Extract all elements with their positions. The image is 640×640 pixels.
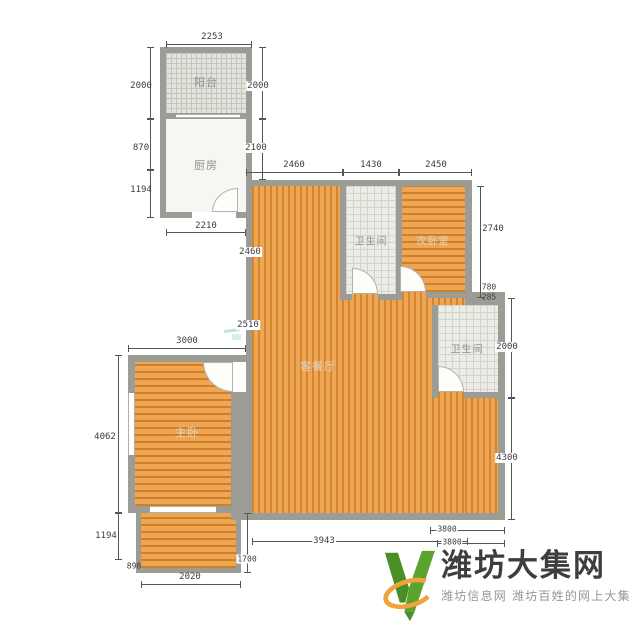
wall-segment: [396, 292, 402, 298]
room-label-bath-center: 卫生间: [355, 233, 388, 248]
wall-segment: [160, 47, 166, 119]
dim-label: 2460: [238, 247, 262, 257]
wall-segment: [160, 47, 252, 53]
wall-segment: [160, 113, 166, 218]
logo-v-icon: [381, 549, 437, 623]
dim-label: 2510: [236, 320, 260, 330]
wall-segment: [128, 355, 246, 362]
room-label-living: 客餐厅: [300, 358, 336, 374]
window-bedroom-master: [128, 393, 135, 455]
balcony2-floor: [141, 513, 236, 568]
door-opening: [231, 362, 246, 392]
wall-segment: [160, 212, 192, 218]
dim-label: 1700: [236, 555, 257, 564]
wall-segment: [246, 180, 472, 186]
room-label-balcony: 阳台: [194, 74, 218, 90]
dim-line: [141, 584, 241, 585]
dim-label: 2450: [425, 160, 447, 170]
window-bedroom-balcony: [150, 506, 216, 513]
room-label-bedroom-master: 主卧: [175, 424, 199, 440]
dim-line: [118, 513, 119, 560]
wall-segment: [498, 305, 505, 520]
wall-segment: [236, 513, 241, 573]
dim-label: 898: [127, 562, 141, 571]
dim-line: [166, 44, 252, 45]
site-logo: 潍坊大集网 潍坊信息网 潍坊百姓的网上大集: [381, 549, 631, 623]
dim-label: 2100: [244, 143, 268, 153]
living-room-floor-right: [465, 398, 498, 513]
wall-segment: [128, 506, 150, 513]
dim-line: [247, 513, 248, 573]
watermark-smudge: [232, 334, 241, 340]
dim-label: 3800: [441, 538, 462, 547]
wall-segment: [246, 180, 252, 513]
wall-segment: [465, 180, 472, 298]
wall-segment: [432, 392, 438, 398]
dim-label: 1194: [130, 185, 152, 195]
dim-line: [150, 119, 151, 170]
dim-line: [343, 172, 399, 173]
dim-line: [252, 541, 468, 542]
floorplan-drawing: 阳台 厨房 卫生间 次卧室 卫生间 客餐厅 主卧 2253 2000: [0, 0, 640, 640]
dim-label: 1194: [95, 531, 117, 541]
dim-label: 2020: [179, 572, 201, 582]
room-label-bedroom-small: 次卧室: [417, 233, 450, 248]
dim-label: 1430: [360, 160, 382, 170]
dim-line: [246, 172, 343, 173]
dim-label: 3800: [436, 525, 457, 534]
dim-label: 780: [482, 283, 496, 292]
floorplan-image: 阳台 厨房 卫生间 次卧室 卫生间 客餐厅 主卧 2253 2000: [0, 0, 640, 640]
dim-label: 2460: [283, 160, 305, 170]
dim-label: 3943: [312, 536, 336, 546]
dim-line: [166, 232, 246, 233]
room-label-kitchen: 厨房: [194, 157, 218, 173]
dim-line: [128, 348, 246, 349]
dim-label: 2000: [130, 81, 152, 91]
logo-subtitle: 潍坊信息网 潍坊百姓的网上大集: [441, 587, 631, 604]
balcony-sliding-door: [176, 114, 240, 118]
wall-segment: [231, 513, 505, 520]
dim-label: 2740: [482, 224, 504, 234]
room-label-bath-right: 卫生间: [451, 341, 484, 356]
dim-label: 3000: [176, 336, 198, 346]
dim-label: 2000: [246, 81, 270, 91]
wall-segment: [340, 294, 352, 300]
dim-line: [399, 172, 472, 173]
wall-segment: [340, 186, 346, 300]
dim-label: 2253: [201, 32, 223, 42]
dim-label: 870: [133, 143, 149, 153]
logo-title: 潍坊大集网: [441, 549, 631, 585]
dim-label: 4062: [94, 432, 116, 442]
dim-line: [480, 186, 481, 298]
dim-label: 4300: [495, 453, 519, 463]
dim-label: 285: [482, 293, 496, 302]
dim-label: 2210: [195, 221, 217, 231]
dim-label: 2000: [495, 342, 519, 352]
dim-line: [118, 355, 119, 513]
